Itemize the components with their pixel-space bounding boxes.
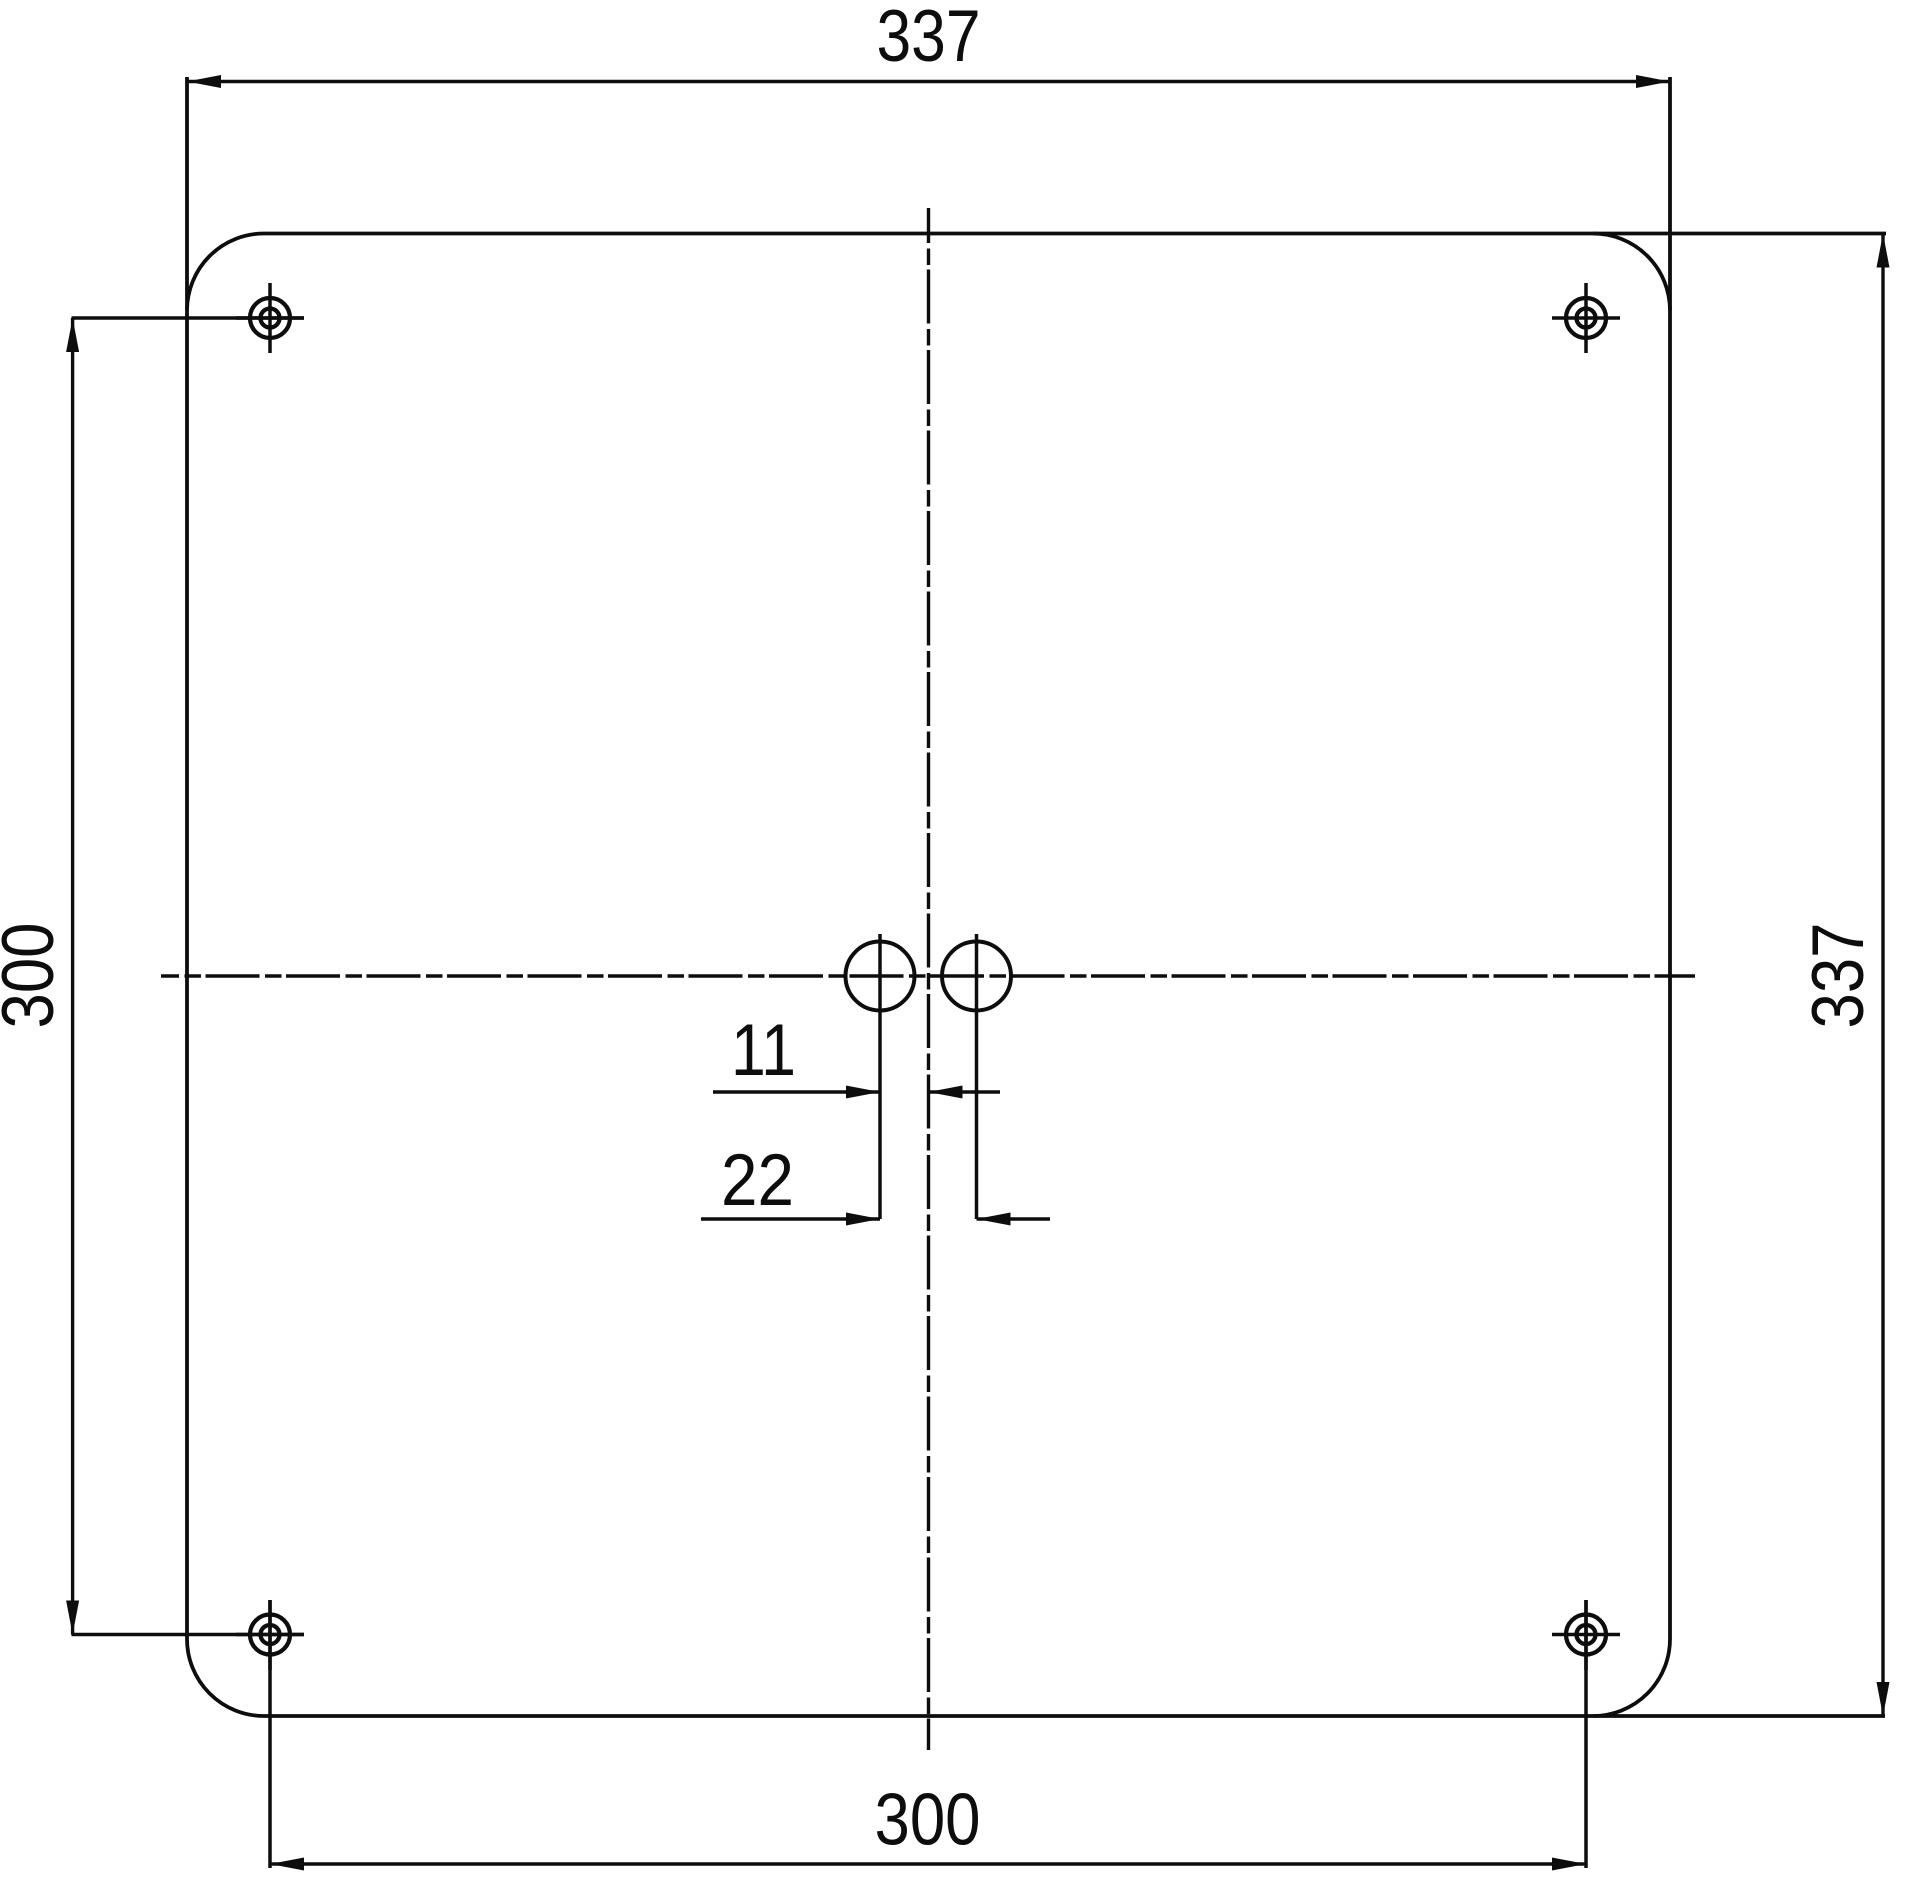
- svg-text:11: 11: [731, 1010, 796, 1091]
- svg-text:22: 22: [721, 1140, 794, 1221]
- svg-text:300: 300: [875, 1780, 981, 1861]
- svg-text:337: 337: [877, 0, 981, 77]
- svg-text:337: 337: [1798, 923, 1879, 1029]
- svg-text:300: 300: [0, 923, 69, 1029]
